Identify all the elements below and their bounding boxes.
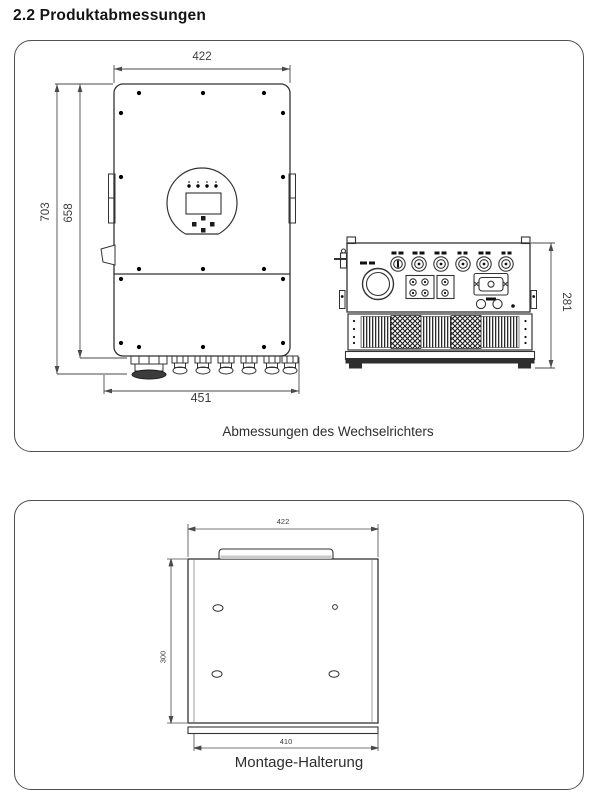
side-view-drawing <box>334 237 537 369</box>
dim-front-width-top: 422 <box>168 51 236 63</box>
dim-side-depth: 281 <box>560 292 572 311</box>
front-view-dimension-lines <box>55 65 299 394</box>
dim-front-height-total: 703 <box>40 202 52 221</box>
manual-page: 2.2 Produktabmessungen <box>0 0 600 797</box>
dim-bracket-height: 300 <box>159 651 168 664</box>
inverter-dimensions-panel: 422 703 658 451 281 Abmessungen des Wech… <box>14 40 584 452</box>
front-view-drawing <box>101 84 298 379</box>
bracket-figure-caption: Montage-Halterung <box>15 754 583 771</box>
page-title: 2.2 Produktabmessungen <box>13 7 206 25</box>
inverter-figure-caption: Abmessungen des Wechselrichters <box>44 424 600 439</box>
inverter-dimension-drawing <box>15 41 582 450</box>
dim-front-width-bottom: 451 <box>165 391 237 405</box>
dim-bracket-width-top: 422 <box>261 517 305 526</box>
dim-front-height-body: 658 <box>63 203 75 222</box>
bracket-drawing <box>188 549 378 734</box>
mounting-bracket-panel: 422 300 410 Montage-Halterung <box>14 500 584 790</box>
side-view-dimension-lines <box>531 243 555 368</box>
dim-bracket-width-bottom: 410 <box>264 737 308 746</box>
